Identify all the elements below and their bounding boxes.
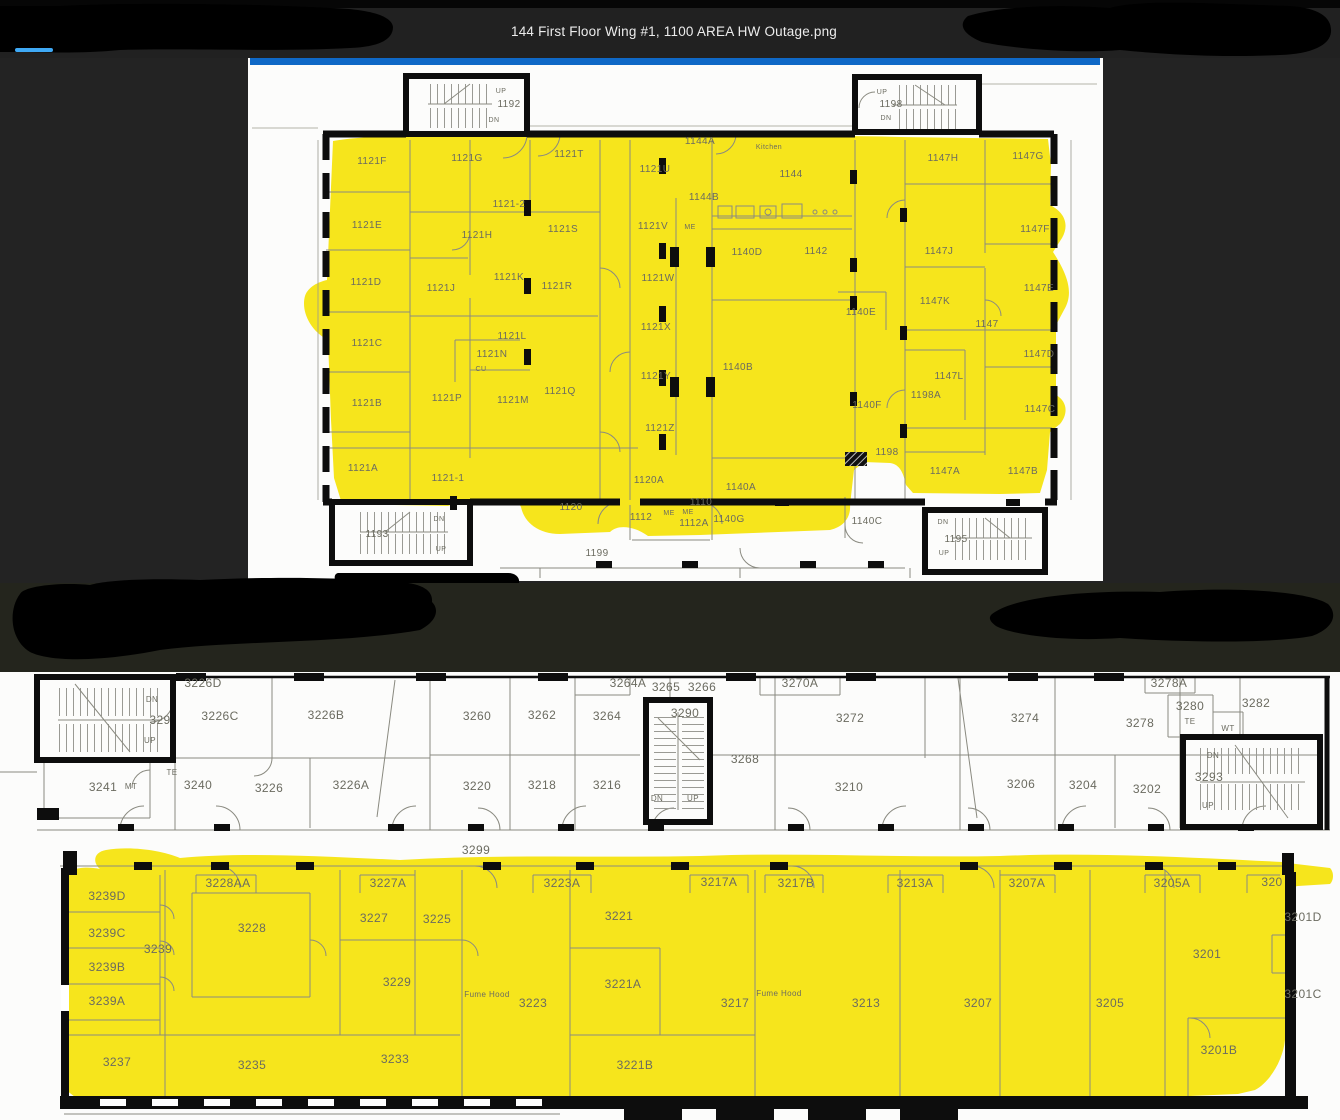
room-label: 1140F	[852, 400, 882, 411]
wall-mark	[846, 673, 876, 681]
wall-mark	[726, 673, 756, 681]
room-label: 3229	[383, 975, 411, 989]
room-label: 1195	[944, 534, 967, 545]
wall-mark	[706, 377, 715, 397]
wall-mark	[968, 824, 984, 831]
room-label: 3205	[1096, 996, 1124, 1010]
wall-mark	[659, 434, 666, 450]
room-label: 1121M	[497, 395, 529, 406]
room-label: 1144A	[685, 136, 715, 147]
wall-mark	[1008, 673, 1038, 681]
room-label: 3228	[238, 921, 266, 935]
room-label: 3226D	[184, 676, 221, 690]
room-label: 3205A	[1154, 876, 1191, 890]
wall-mark	[524, 349, 531, 365]
room-label: 1121U	[640, 164, 671, 175]
room-label: 1198	[879, 99, 902, 110]
room-label: 1140A	[726, 482, 756, 493]
room-label: 3239D	[88, 889, 125, 903]
room-label: 1140E	[846, 307, 876, 318]
wall-mark	[483, 862, 501, 870]
wall-mark	[1054, 862, 1072, 870]
room-label: 1121Z	[645, 423, 675, 434]
room-label: 3218	[528, 778, 556, 792]
room-label: 3217	[721, 996, 749, 1010]
room-label: ME	[682, 509, 693, 516]
room-label: 1147G	[1012, 151, 1043, 162]
room-label: DN	[434, 516, 445, 523]
room-label: MT	[125, 782, 137, 791]
wall-mark	[211, 862, 229, 870]
room-label: 1121W	[642, 273, 675, 284]
room-label: 3278A	[1151, 676, 1188, 690]
room-label: 1121L	[497, 331, 526, 342]
room-label: 3228AA	[205, 876, 250, 890]
room-label: 1140B	[723, 362, 753, 373]
room-label: 3217B	[778, 876, 815, 890]
room-label: 3210	[835, 780, 863, 794]
room-label: 1199	[585, 548, 608, 559]
room-label: 3262	[528, 708, 556, 722]
wall-mark	[800, 561, 816, 568]
wall-mark	[152, 1099, 178, 1106]
wall-mark	[900, 1109, 958, 1120]
wall-mark	[670, 377, 679, 397]
room-label: 1121A	[348, 463, 378, 474]
room-label: UP	[1202, 801, 1214, 810]
room-label: 3233	[381, 1052, 409, 1066]
room-label: 3213	[852, 996, 880, 1010]
room-label: 1121F	[357, 156, 387, 167]
room-label: 3201	[1193, 947, 1221, 961]
room-label: ME	[663, 510, 674, 517]
room-label: 3266	[688, 680, 716, 694]
room-label: CU	[476, 366, 487, 373]
wall-mark	[682, 561, 698, 568]
wall-mark	[850, 258, 857, 272]
wall-mark	[775, 499, 789, 506]
room-label: 1198	[875, 447, 898, 458]
image-filename-1: 144 First Floor Wing #1, 1100 AREA HW Ou…	[511, 24, 837, 39]
room-label: 3201C	[1284, 987, 1321, 1001]
room-label: 1112	[630, 512, 652, 523]
room-label: Fume Hood	[756, 989, 801, 998]
room-label: 3293	[1195, 770, 1223, 784]
wall-mark	[671, 862, 689, 870]
room-label: 320	[1261, 875, 1282, 889]
room-label: 3282	[1242, 696, 1270, 710]
room-label: 3274	[1011, 711, 1039, 725]
screenshot-root: 144 First Floor Wing #1, 1100 AREA HW Ou…	[0, 0, 1340, 1120]
room-label: UP	[687, 794, 699, 803]
wall-mark	[1094, 673, 1124, 681]
room-label: 3223	[519, 996, 547, 1010]
wall-mark	[296, 862, 314, 870]
wall-mark	[524, 278, 531, 294]
room-label: 1121G	[451, 153, 482, 164]
wall-mark	[204, 1099, 230, 1106]
room-label: 1121T	[554, 149, 584, 160]
room-label: 1121P	[432, 393, 462, 404]
room-label: Kitchen	[756, 144, 782, 151]
room-label: 1121N	[477, 349, 508, 360]
room-label: 1121J	[427, 283, 456, 294]
wall-mark	[100, 1099, 126, 1106]
hatched-block	[845, 452, 867, 466]
wall-mark	[538, 673, 568, 681]
room-label: 3226	[255, 781, 283, 795]
room-label: 1140G	[713, 514, 744, 525]
wall-mark	[576, 862, 594, 870]
room-label: TE	[166, 768, 177, 777]
room-label: WT	[1221, 724, 1234, 733]
wall-mark	[308, 1099, 334, 1106]
wall-mark	[596, 561, 612, 568]
room-label: 1147A	[930, 466, 960, 477]
room-label: 3226C	[201, 709, 238, 723]
room-label: 3280	[1176, 699, 1204, 713]
room-label: 1140C	[852, 516, 883, 527]
room-label: 1192	[497, 99, 520, 110]
room-label: 3223A	[544, 876, 581, 890]
wall-mark	[134, 862, 152, 870]
wall-mark	[294, 673, 324, 681]
stairwell-1198	[855, 77, 979, 132]
room-label: 1121S	[548, 224, 578, 235]
wall-mark	[450, 496, 457, 510]
room-label: 3260	[463, 709, 491, 723]
room-label: 1193	[365, 529, 388, 540]
room-label: TE	[1184, 717, 1195, 726]
room-label: 3221	[605, 909, 633, 923]
room-label: 1198A	[911, 390, 941, 401]
wall-mark	[1218, 862, 1236, 870]
stairwell-1193	[332, 502, 470, 563]
titlebar-1: 144 First Floor Wing #1, 1100 AREA HW Ou…	[0, 0, 1340, 58]
room-label: 3216	[593, 778, 621, 792]
wall-mark	[659, 243, 666, 259]
room-label: 1121V	[638, 221, 668, 232]
room-label: 1142	[804, 246, 827, 257]
room-label: DN	[938, 519, 949, 526]
room-label: UP	[496, 88, 507, 95]
room-label: 3227A	[370, 876, 407, 890]
wall-mark	[878, 824, 894, 831]
room-label: 3217A	[701, 875, 738, 889]
wall-mark	[900, 424, 907, 438]
room-label: 1121-1	[432, 473, 465, 484]
room-label: 3213A	[897, 876, 934, 890]
room-label: 3272	[836, 711, 864, 725]
room-label: 1147E	[1024, 283, 1054, 294]
room-label: 3239B	[89, 960, 126, 974]
room-label: 3270A	[782, 676, 819, 690]
floor-plan-first-floor: UP1192DNUP1198DN1121F1121G1121T1121U1144…	[248, 58, 1103, 581]
room-label: 3278	[1126, 716, 1154, 730]
room-label: 1140D	[732, 247, 763, 258]
room-label: 3221A	[605, 977, 642, 991]
room-label: 3268	[731, 752, 759, 766]
wall-mark	[412, 1099, 438, 1106]
room-label: 3207	[964, 996, 992, 1010]
wall-mark	[788, 824, 804, 831]
wall-mark	[659, 306, 666, 322]
room-label: 1121Y	[641, 371, 671, 382]
wall-mark	[1058, 824, 1074, 831]
room-label: 3241	[89, 780, 117, 794]
room-label: 1147D	[1024, 349, 1055, 360]
wall-mark	[118, 824, 134, 831]
room-label: 1112A	[679, 518, 708, 529]
titlebar-2: 144 Third Floor Wing #2, #3200 Area HW O…	[0, 583, 1340, 672]
room-label: 3237	[103, 1055, 131, 1069]
room-label: 1147F	[1020, 224, 1050, 235]
room-label: 3201D	[1284, 910, 1321, 924]
room-label: 3207A	[1009, 876, 1046, 890]
room-label: 3264	[593, 709, 621, 723]
room-label: 1147J	[925, 246, 954, 257]
room-label: 1121B	[352, 398, 382, 409]
room-label: 3226B	[308, 708, 345, 722]
room-label: 3290	[671, 706, 699, 720]
room-label: Fume Hood	[464, 990, 509, 999]
room-label: 3201B	[1201, 1043, 1238, 1057]
room-label: 3227	[360, 911, 388, 925]
room-label: DN	[489, 117, 500, 124]
wall-mark	[1006, 499, 1020, 506]
room-label: 3202	[1133, 782, 1161, 796]
room-label: 1121X	[641, 322, 671, 333]
room-label: ME	[684, 224, 695, 231]
wall-mark	[256, 1099, 282, 1106]
wall-mark	[468, 824, 484, 831]
room-label: 3299	[462, 843, 490, 857]
wall-mark	[1238, 824, 1254, 831]
room-label: 3235	[238, 1058, 266, 1072]
room-label: 3264A	[610, 676, 647, 690]
room-label: 1147L	[934, 371, 963, 382]
room-label: 3239	[144, 942, 172, 956]
floorplan-image-1[interactable]: UP1192DNUP1198DN1121F1121G1121T1121U1144…	[248, 58, 1103, 581]
floor-plan-third-floor[interactable]: 3226D329DNUP3226C3226BTE3241MT3240322632…	[0, 672, 1340, 1120]
room-label: 3204	[1069, 778, 1097, 792]
wall-mark	[770, 862, 788, 870]
room-label: 1121-2	[493, 199, 526, 210]
wall-mark	[464, 1099, 490, 1106]
room-label: 3206	[1007, 777, 1035, 791]
room-label: UP	[939, 550, 950, 557]
room-label: 3220	[463, 779, 491, 793]
room-label: 1147K	[920, 296, 950, 307]
room-label: 1121Q	[544, 386, 575, 397]
room-label: 3225	[423, 912, 451, 926]
room-label: DN	[651, 794, 663, 803]
wall-mark	[214, 824, 230, 831]
room-label: 1147	[975, 319, 998, 330]
wall-mark	[670, 247, 679, 267]
room-label: 1121D	[351, 277, 382, 288]
room-label: 1144	[779, 169, 802, 180]
wall-mark	[868, 561, 884, 568]
wall-mark	[558, 824, 574, 831]
room-label: 1121K	[494, 272, 524, 283]
room-label: 1147C	[1025, 404, 1056, 415]
room-label: 3240	[184, 778, 212, 792]
room-label: 1110	[690, 497, 712, 508]
room-label: 1147H	[928, 153, 959, 164]
room-label: 3239A	[89, 994, 126, 1008]
wall-mark	[716, 1109, 774, 1120]
wall-mark	[900, 208, 907, 222]
wall-mark	[900, 326, 907, 340]
room-label: UP	[877, 89, 888, 96]
room-label: 3239C	[88, 926, 125, 940]
room-label: 1120A	[634, 475, 664, 486]
wall-mark	[648, 824, 664, 831]
room-label: 1144B	[689, 192, 719, 203]
room-label: DN	[146, 695, 158, 704]
wall-mark	[388, 824, 404, 831]
room-label: UP	[436, 546, 447, 553]
room-label: 3221B	[617, 1058, 654, 1072]
wall-mark	[1145, 862, 1163, 870]
room-label: UP	[144, 736, 156, 745]
room-label: 329	[149, 713, 170, 727]
room-label: 1121H	[462, 230, 493, 241]
room-label: DN	[1207, 751, 1219, 760]
room-label: 1121E	[352, 220, 382, 231]
wall-mark	[624, 1109, 682, 1120]
wall-mark	[360, 1099, 386, 1106]
room-label: 1121C	[352, 338, 383, 349]
room-label: 1120	[559, 502, 582, 513]
wall-mark	[1148, 824, 1164, 831]
wall-mark	[850, 170, 857, 184]
wall-mark	[516, 1099, 542, 1106]
room-label: 1147B	[1008, 466, 1038, 477]
room-label: 1121R	[542, 281, 573, 292]
wall-mark	[706, 247, 715, 267]
room-label: 3265	[652, 680, 680, 694]
room-label: 3226A	[333, 778, 370, 792]
room-label: DN	[881, 115, 892, 122]
wall-mark	[416, 673, 446, 681]
wall-mark	[960, 862, 978, 870]
wall-mark	[808, 1109, 866, 1120]
